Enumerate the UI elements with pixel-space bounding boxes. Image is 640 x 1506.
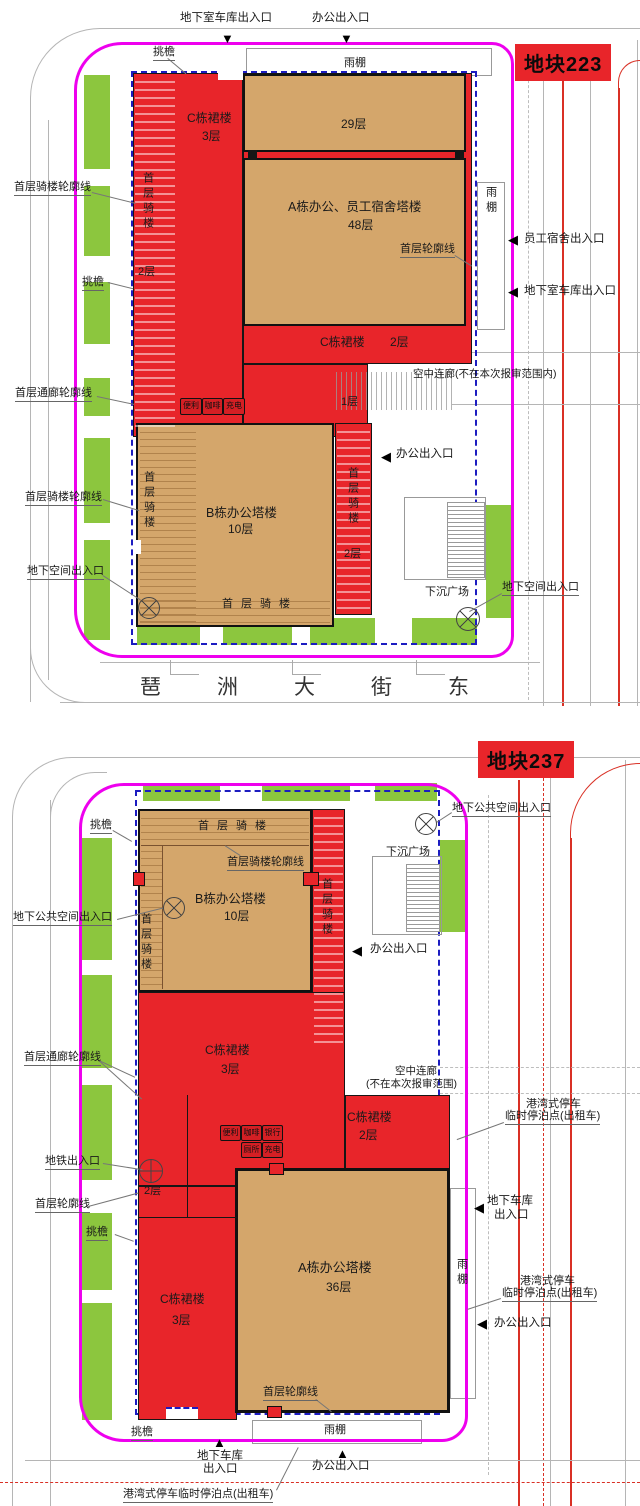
sunken-plaza-stairs-icon (447, 502, 485, 578)
arcade-hatch (135, 75, 175, 428)
label-underground-right: 地下空间出入口 (502, 581, 579, 596)
road-redline (570, 838, 572, 1506)
edge-notch (303, 872, 319, 886)
entrance-arrow-up-icon: ▲ (336, 1447, 349, 1460)
label-arcade-towerb-vertical: 首层骑楼 (142, 471, 155, 543)
label-metro-entrance: 地铁出入口 (45, 1155, 100, 1170)
sunken-plaza-stairs-icon (406, 864, 440, 932)
road-redline-curve (570, 763, 640, 839)
label-podium-c-upper-name: C栋裙楼 (205, 1044, 250, 1058)
entrance-arrow-left-icon: ◀ (381, 450, 391, 463)
street-name: 琶洲大街东 (140, 676, 525, 700)
label-eave-left: 挑檐 (82, 276, 104, 291)
label-tower-a-floors: 36层 (326, 1281, 351, 1295)
service-box-charging: 充电 (223, 398, 245, 415)
label-tower29-floors: 29层 (341, 118, 366, 132)
label-podium-floor1: 1层 (341, 396, 358, 409)
entrance-arrow-left-icon: ◀ (474, 1201, 484, 1214)
label-tower-a-floors: 48层 (348, 219, 373, 233)
label-office-entrance-top: 办公出入口 (312, 12, 370, 25)
label-office-entrance-right: 办公出入口 (494, 1317, 552, 1330)
label-first-outline-left: 首层轮廓线 (35, 1198, 90, 1213)
underground-exit-circle-icon (456, 607, 480, 631)
entrance-arrow-left-icon: ◀ (477, 1317, 487, 1330)
service-box-coffee: 咖啡 (241, 1125, 262, 1141)
label-underground-left: 地下空间出入口 (27, 565, 104, 580)
label-bay-parking-bottom: 港湾式停车临时停泊点(出租车) (123, 1488, 273, 1503)
label-office-entrance-mid: 办公出入口 (370, 943, 428, 956)
edge-notch (133, 540, 141, 554)
road-redline-dashed (0, 1482, 640, 1483)
road-redline-dashed (543, 763, 544, 1506)
label-arcade-bottom: 首层骑楼 (222, 598, 298, 611)
road-line (30, 112, 31, 702)
label-podium-c-mid-name: C栋裙楼 (320, 336, 365, 350)
entrance-arrow-left-icon: ◀ (352, 944, 362, 957)
label-garage-bottom-line1: 地下车库 (197, 1450, 243, 1463)
label-garage-bottom-line2: 出入口 (203, 1463, 238, 1476)
service-box-bank: 银行 (262, 1125, 283, 1141)
road-line (550, 760, 551, 1506)
label-tower-b-floors: 10层 (228, 523, 253, 537)
road-redline (618, 88, 620, 706)
edge-notch (133, 872, 145, 886)
label-podium-c-upper-floors: 3层 (221, 1063, 240, 1077)
leader-line (276, 1447, 299, 1490)
edge-notch (267, 1406, 282, 1418)
label-tower-b-floors: 10层 (224, 910, 249, 924)
label-underground-public-left: 地下公共空间出入口 (13, 911, 112, 926)
edge-notch (269, 1163, 284, 1175)
label-tower-a-name: A栋办公、员工宿舍塔楼 (288, 200, 421, 214)
podium-division-line (138, 1217, 237, 1218)
label-corridor-outline: 首层通廊轮廓线 (24, 1051, 101, 1066)
road-centerline-dashed (488, 795, 489, 1475)
label-sky-corridor-line1: 空中连廊 (395, 1065, 437, 1077)
road-line (60, 702, 640, 703)
building-tower-29-p223 (243, 74, 466, 152)
road-line (637, 40, 638, 706)
label-eave-top-left: 挑檐 (90, 819, 112, 834)
dimension-tick (170, 660, 199, 675)
label-arcade-floors2: 2层 (144, 1185, 161, 1198)
road-line (50, 800, 51, 1506)
road-line (625, 760, 626, 1506)
label-dorm-entrance: 员工宿舍出入口 (524, 233, 605, 246)
label-arcade-floors2-left: 2层 (138, 266, 155, 279)
label-podium-c-right-name: C栋裙楼 (347, 1111, 392, 1125)
label-office-entrance-bottom: 办公出入口 (312, 1460, 370, 1473)
label-arcade-outline-upper: 首层骑楼轮廓线 (14, 181, 91, 196)
dimension-tick (416, 660, 445, 675)
label-bay-parking-2-line1: 港湾式停车 (520, 1275, 575, 1288)
label-podium-c-lower-name: C栋裙楼 (160, 1293, 205, 1307)
service-box-convenience: 便利 (220, 1125, 241, 1141)
label-underground-public-top: 地下公共空间出入口 (452, 802, 551, 817)
label-arcade-outline-lower: 首层骑楼轮廓线 (25, 491, 102, 506)
label-tower-a-name: A栋办公塔楼 (298, 1261, 372, 1276)
label-garage-entrance-right: 地下室车库出入口 (524, 285, 616, 298)
road-redline (562, 75, 564, 706)
underground-exit-circle-icon (163, 897, 185, 919)
edge-notch (166, 1407, 198, 1419)
entrance-arrow-left-icon: ◀ (508, 285, 518, 298)
road-line (12, 835, 13, 1506)
label-tower-b-name: B栋办公塔楼 (195, 892, 266, 906)
metro-exit-circle-icon (139, 1159, 163, 1183)
label-podium-c-right-floors: 2层 (359, 1129, 378, 1143)
site-plan: 便利 咖啡 充电 ▼ ▼ ◀ ◀ ◀ 地下室车库出入口 办公出入口 挑檐 雨棚 … (0, 0, 640, 1506)
road-corner-line (30, 642, 101, 703)
label-eave-bottom: 挑檐 (131, 1426, 153, 1441)
label-arcade-right-vertical: 首层骑楼 (320, 878, 333, 948)
entrance-arrow-down-icon: ▼ (221, 32, 234, 45)
label-arcade-outline: 首层骑楼轮廓线 (227, 856, 304, 871)
label-eave-mid-left: 挑檐 (86, 1226, 108, 1241)
underground-exit-circle-icon (415, 813, 437, 835)
building-tower-a-p223 (243, 158, 466, 326)
sky-corridor-extension-line (440, 1093, 640, 1094)
label-sunken-plaza: 下沉广场 (425, 586, 469, 599)
label-eave: 挑檐 (153, 46, 175, 61)
parcel-title-223: 地块223 (515, 44, 611, 81)
label-sunken-plaza: 下沉广场 (386, 846, 430, 859)
label-sky-corridor: 空中连廊(不在本次报审范围内) (413, 368, 557, 380)
road-redline (518, 780, 520, 1506)
entrance-arrow-down-icon: ▼ (340, 32, 353, 45)
edge-notch (218, 70, 243, 80)
label-canopy: 雨棚 (344, 57, 366, 70)
label-canopy-right: 雨棚 (484, 186, 497, 246)
label-corridor-outline: 首层通廊轮廓线 (15, 387, 92, 402)
tower-joint-notch (455, 150, 464, 160)
label-podium-c-lower-floors: 3层 (172, 1314, 191, 1328)
label-arcade-right-vertical: 首层骑楼 (346, 467, 359, 539)
label-canopy-bottom: 雨棚 (324, 1424, 346, 1437)
label-arcade-floors2-right: 2层 (344, 548, 361, 561)
label-garage-right-line1: 地下车库 (487, 1195, 533, 1208)
dimension-tick (292, 660, 321, 675)
label-garage-entrance-top: 地下室车库出入口 (180, 12, 272, 25)
service-box-convenience: 便利 (180, 398, 202, 415)
label-arcade-left-vertical: 首层骑楼 (141, 172, 154, 242)
service-box-coffee: 咖啡 (202, 398, 223, 415)
entrance-arrow-up-icon: ▲ (213, 1436, 226, 1449)
label-bay-parking-1-line1: 港湾式停车 (526, 1098, 581, 1111)
label-first-floor-outline: 首层轮廓线 (400, 243, 455, 258)
label-arcade-left-vertical: 首层骑楼 (139, 913, 152, 985)
label-first-outline-bottom: 首层轮廓线 (263, 1386, 318, 1401)
podium-division-line (187, 1095, 188, 1217)
label-canopy-right: 雨棚 (455, 1258, 468, 1300)
label-podium-c-floors: 3层 (202, 130, 221, 144)
label-arcade-top: 首层骑楼 (198, 820, 274, 833)
road-line (115, 28, 640, 29)
label-podium-c-mid-floors: 2层 (390, 336, 409, 350)
tower-joint-notch (248, 150, 257, 160)
entrance-arrow-left-icon: ◀ (508, 233, 518, 246)
label-bay-parking-1-line2: 临时停泊点(出租车) (505, 1110, 600, 1125)
road-line (543, 58, 544, 706)
service-box-charging: 充电 (262, 1142, 283, 1158)
label-office-entrance-mid: 办公出入口 (396, 448, 454, 461)
parcel-title-237: 地块237 (478, 741, 574, 778)
sky-corridor-extension-line (440, 1067, 640, 1068)
service-box-toilet: 厕所 (241, 1142, 262, 1158)
label-bay-parking-2-line2: 临时停泊点(出租车) (502, 1287, 597, 1302)
road-line (590, 45, 591, 706)
underground-exit-circle-icon (138, 597, 160, 619)
label-podium-c-name: C栋裙楼 (187, 112, 232, 126)
label-tower-b-name: B栋办公塔楼 (206, 506, 277, 520)
label-sky-corridor-line2: (不在本次报审范围) (366, 1078, 457, 1090)
label-garage-right-line2: 出入口 (494, 1209, 529, 1222)
road-redline-curve (618, 60, 640, 91)
